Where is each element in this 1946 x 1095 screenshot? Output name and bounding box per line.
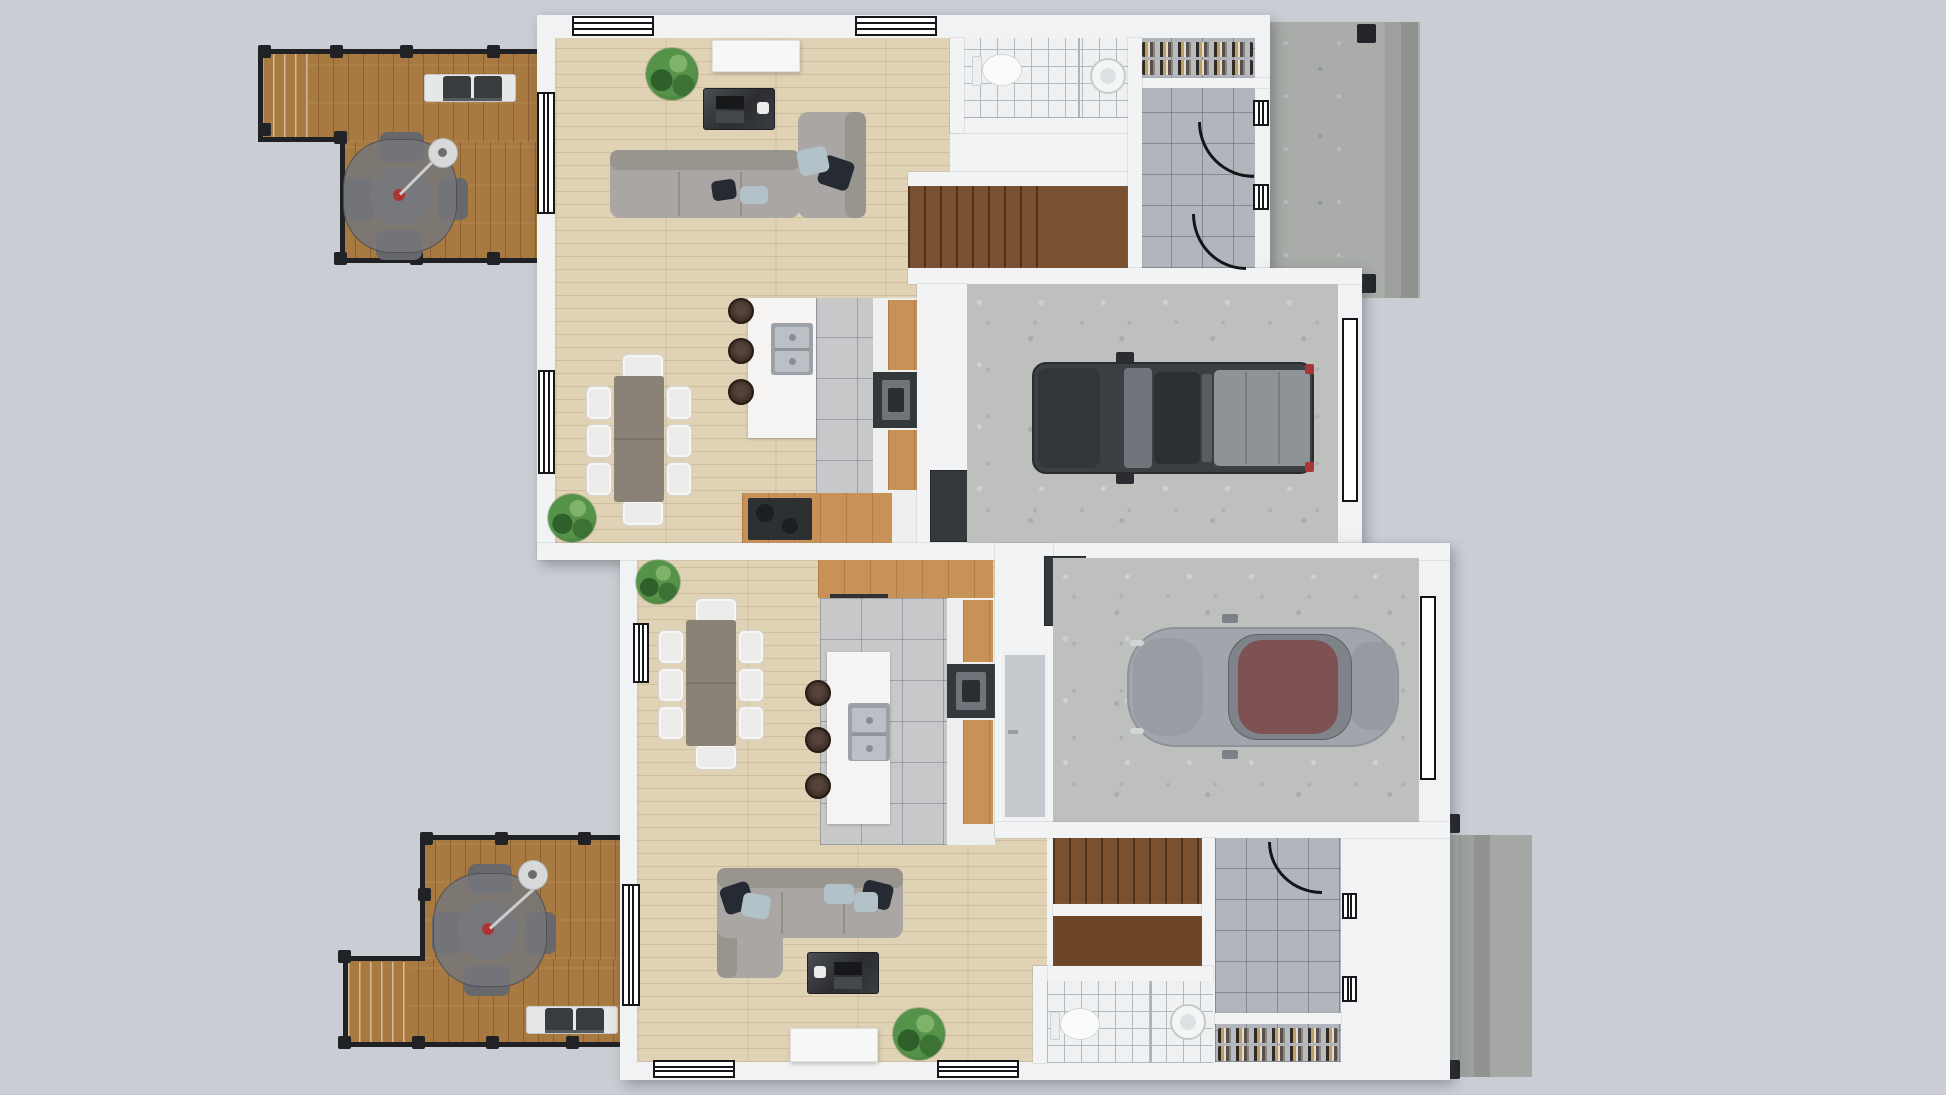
porch-a-post-top bbox=[1357, 24, 1376, 43]
b-laptop-keys bbox=[834, 977, 862, 989]
b-toilet-tank bbox=[1050, 1012, 1060, 1040]
a-hall-wall bbox=[1128, 38, 1142, 270]
a-dining-table-seam bbox=[614, 438, 664, 440]
deck-b-post-4 bbox=[418, 888, 431, 901]
car-glass-canopy bbox=[1228, 634, 1352, 740]
a-counter-wood-lower bbox=[888, 430, 917, 490]
b-window-bottom-1 bbox=[653, 1060, 735, 1078]
a-pillow-dark-2 bbox=[711, 178, 738, 201]
a-plant-1 bbox=[646, 48, 698, 100]
sofa-b-seam-1 bbox=[781, 892, 783, 934]
a-laptop-keys bbox=[716, 111, 744, 123]
a-dining-chair-right-3 bbox=[666, 462, 692, 496]
b-garage-bottom-wall bbox=[995, 822, 1450, 838]
b-plant-2 bbox=[893, 1008, 945, 1060]
a-toilet-tank bbox=[972, 56, 982, 86]
b-stool-3 bbox=[805, 773, 831, 799]
grill-b-handle bbox=[545, 1030, 604, 1033]
a-laptop-screen bbox=[716, 96, 744, 109]
a-entry-window-1 bbox=[1253, 100, 1269, 126]
b-stool-1 bbox=[805, 680, 831, 706]
deck-a-post-6 bbox=[334, 131, 347, 144]
a-stairs-landing bbox=[1040, 186, 1133, 268]
b-dining-chair-right-1 bbox=[738, 630, 764, 664]
b-counter-top bbox=[818, 560, 993, 598]
car-mirror-bottom bbox=[1222, 750, 1238, 759]
b-sink-drain-1 bbox=[866, 717, 873, 724]
a-bath-left-wall bbox=[950, 38, 964, 133]
a-stool-1 bbox=[728, 298, 754, 324]
a-toilet-bowl bbox=[982, 54, 1022, 86]
porch-b-step-1 bbox=[1458, 835, 1474, 1077]
deck-a-post-1 bbox=[258, 45, 271, 58]
b-sink-divider bbox=[852, 733, 886, 736]
a-bath-sink-basin bbox=[1100, 68, 1116, 84]
truck-rear-window bbox=[1202, 374, 1212, 462]
umbrella-a-disc-dot bbox=[438, 148, 447, 157]
a-pillow-blue-2 bbox=[740, 186, 768, 204]
a-window-left bbox=[538, 370, 555, 474]
a-stool-3 bbox=[728, 379, 754, 405]
sofa-a-seam-1 bbox=[678, 172, 680, 216]
b-bath-sink-basin bbox=[1180, 1014, 1196, 1030]
b-dining-chair-bottom bbox=[695, 744, 737, 770]
deck-b-rail-notch bbox=[343, 956, 425, 961]
deck-a-post-3 bbox=[400, 45, 413, 58]
a-burner-1 bbox=[756, 504, 774, 522]
deck-a-rail-bottom bbox=[340, 258, 540, 263]
b-stairs-mid-wall bbox=[1053, 904, 1211, 916]
b-counter-wood-lower bbox=[963, 720, 993, 824]
truck-taillight-top bbox=[1305, 364, 1314, 374]
b-window-left bbox=[633, 623, 649, 683]
car-hood bbox=[1133, 638, 1203, 736]
car-mirror-top bbox=[1222, 614, 1238, 623]
b-window-bottom-2 bbox=[937, 1060, 1019, 1078]
b-shoes-row-2 bbox=[1218, 1046, 1338, 1061]
grill-b-lid-right bbox=[576, 1008, 604, 1032]
b-garage-gray-door bbox=[1002, 652, 1048, 820]
a-entry-window-2 bbox=[1253, 184, 1269, 210]
a-shoes-row-1 bbox=[1142, 42, 1253, 57]
b-garage-door bbox=[1420, 596, 1436, 780]
b-sink-drain-2 bbox=[866, 745, 873, 752]
a-garage-door bbox=[1342, 318, 1358, 502]
car-rear-deck bbox=[1352, 642, 1396, 730]
a-counter-wood-upper bbox=[888, 300, 917, 370]
deck-a-post-4 bbox=[487, 45, 500, 58]
truck-bed-line-2 bbox=[1278, 372, 1280, 464]
car-headlight-top bbox=[1130, 640, 1144, 646]
umbrella-b-disc-dot bbox=[528, 870, 537, 879]
b-entry-window-1 bbox=[1342, 893, 1357, 919]
deck-b-post-6 bbox=[338, 1036, 351, 1049]
a-dining-chair-left-3 bbox=[586, 462, 612, 496]
deck-a-post-5 bbox=[258, 123, 271, 136]
b-dining-chair-left-1 bbox=[658, 630, 684, 664]
b-bath-partition bbox=[1150, 981, 1152, 1063]
deck-a-post-2 bbox=[330, 45, 343, 58]
truck-mirror-bottom bbox=[1116, 473, 1134, 484]
grill-a-lid-left bbox=[443, 76, 471, 100]
a-dining-chair-left-2 bbox=[586, 424, 612, 458]
b-deck-door bbox=[622, 884, 640, 1006]
truck-mirror-top bbox=[1116, 352, 1134, 363]
b-stairs-treads bbox=[1053, 838, 1211, 904]
a-bath-partition bbox=[1078, 38, 1080, 118]
a-shoe-closet-wall bbox=[1133, 78, 1270, 88]
deck-b-post-2 bbox=[495, 832, 508, 845]
truck-bed-cover bbox=[1214, 370, 1310, 466]
a-tv-console bbox=[712, 40, 800, 72]
grill-b-lid-left bbox=[545, 1008, 573, 1032]
b-shoes-row-1 bbox=[1218, 1028, 1338, 1043]
b-coffee-item bbox=[814, 966, 826, 978]
deck-b-stairs bbox=[348, 962, 410, 1042]
a-window-top-1 bbox=[572, 16, 654, 36]
a-burner-2 bbox=[782, 518, 798, 534]
b-pillow-blue-2 bbox=[824, 884, 854, 904]
b-bath-top-wall bbox=[1033, 966, 1213, 981]
b-dining-chair-right-2 bbox=[738, 668, 764, 702]
a-window-top-2 bbox=[855, 16, 937, 36]
a-bath-bottom-wall bbox=[950, 118, 1147, 133]
b-dining-chair-left-3 bbox=[658, 706, 684, 740]
a-sink-divider bbox=[775, 348, 809, 351]
sofa-a-back bbox=[610, 150, 800, 170]
b-laptop-screen bbox=[834, 962, 862, 975]
deck-b-post-5 bbox=[338, 950, 351, 963]
grill-a-lid-right bbox=[474, 76, 502, 100]
b-pillow-blue-3 bbox=[854, 892, 878, 912]
deck-b-post-9 bbox=[566, 1036, 579, 1049]
porch-a-step-1 bbox=[1385, 22, 1401, 298]
b-stool-2 bbox=[805, 727, 831, 753]
a-plant-2 bbox=[548, 494, 596, 542]
b-gray-door-handle bbox=[1008, 730, 1018, 734]
a-deck-door bbox=[537, 92, 555, 214]
truck-roof bbox=[1154, 372, 1200, 464]
a-oven-core bbox=[888, 388, 904, 412]
b-tv-console bbox=[790, 1028, 878, 1062]
a-sink-drain-1 bbox=[789, 334, 796, 341]
b-pillow-blue-1 bbox=[740, 892, 772, 920]
a-media-item bbox=[757, 102, 769, 114]
b-dining-chair-left-2 bbox=[658, 668, 684, 702]
b-bath-left-wall bbox=[1033, 966, 1047, 1063]
b-dining-chair-right-3 bbox=[738, 706, 764, 740]
floorplan-stage bbox=[0, 0, 1946, 1095]
truck-hood bbox=[1038, 368, 1100, 468]
deck-b-post-7 bbox=[412, 1036, 425, 1049]
a-stool-2 bbox=[728, 338, 754, 364]
a-dining-chair-right-2 bbox=[666, 424, 692, 458]
a-stairs-top-wall bbox=[908, 172, 1133, 186]
b-entry-window-2 bbox=[1342, 976, 1357, 1002]
deck-b-post-8 bbox=[486, 1036, 499, 1049]
deck-b-post-3 bbox=[578, 832, 591, 845]
deck-a-post-7 bbox=[334, 252, 347, 265]
porch-b-ext bbox=[1490, 835, 1532, 1077]
a-dining-chair-right-1 bbox=[666, 386, 692, 420]
b-toilet-bowl bbox=[1060, 1008, 1100, 1040]
a-dining-chair-left-1 bbox=[586, 386, 612, 420]
a-shoes-row-2 bbox=[1142, 60, 1253, 75]
a-dining-chair-bottom bbox=[622, 500, 664, 526]
grill-a-handle bbox=[443, 98, 502, 101]
a-garage-top-wall bbox=[908, 268, 1362, 284]
a-sink-drain-2 bbox=[789, 358, 796, 365]
deck-b-rail-left-2 bbox=[343, 956, 348, 1047]
deck-a-rail-notch bbox=[258, 137, 345, 142]
deck-b-post-1 bbox=[420, 832, 433, 845]
b-oven-core bbox=[962, 680, 980, 702]
car-headlight-bottom bbox=[1130, 728, 1144, 734]
truck-taillight-bottom bbox=[1305, 462, 1314, 472]
truck-bed-line-1 bbox=[1245, 372, 1247, 464]
deck-a-post-9 bbox=[487, 252, 500, 265]
b-counter-wood-upper bbox=[963, 600, 993, 662]
a-stairs-treads bbox=[908, 186, 1040, 268]
porch-a-step-2 bbox=[1401, 22, 1418, 298]
b-plant-1 bbox=[636, 560, 680, 604]
b-shoe-closet-wall bbox=[1215, 1013, 1341, 1024]
porch-b-step-2 bbox=[1474, 835, 1490, 1077]
truck-windshield bbox=[1124, 368, 1152, 468]
b-dining-table-seam bbox=[686, 682, 736, 684]
